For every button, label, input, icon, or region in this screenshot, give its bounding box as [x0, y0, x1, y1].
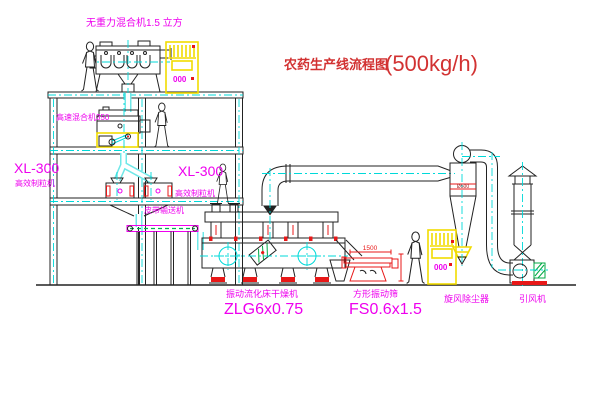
- sieve-motor: [392, 259, 398, 268]
- label-sieve-model: FS0.6x1.5: [349, 301, 422, 318]
- label-cyclone: 旋风除尘器: [444, 293, 489, 304]
- sieve-base: [350, 267, 386, 281]
- cad-flowchart-screenshot: 000: [0, 0, 600, 403]
- cyclone-dia-note: Ø500: [457, 184, 469, 190]
- sieve-dim-1500: 1500: [363, 245, 378, 252]
- drawing-title-capacity: (500kg/h): [385, 51, 478, 76]
- label-high-speed-mixer: 高速混合机350: [56, 112, 110, 122]
- label-granulator-left-name: 高效制粒机: [15, 178, 55, 188]
- exhaust-duct: [262, 164, 455, 240]
- label-fbd-name: 振动流化床干燥机: [226, 288, 298, 299]
- label-fan: 引风机: [519, 293, 546, 304]
- control-cabinet-top: 000: [166, 42, 198, 93]
- mixer-paddles: [101, 52, 150, 69]
- gravity-free-mixer: [86, 40, 171, 96]
- cyclone-outlet-pipe: [462, 150, 513, 275]
- label-gravity-mixer: 无重力混合机1.5 立方: [86, 16, 183, 29]
- drawing-title: 农药生产线流程图: [283, 57, 388, 72]
- induced-draft-fan: [498, 260, 548, 285]
- label-fbd-model: ZLG6x0.75: [224, 301, 303, 318]
- dryer-legs: [209, 268, 331, 283]
- dryer-bellows: [211, 222, 333, 238]
- label-granulator-right-model: XL-300: [178, 163, 223, 179]
- fluid-bed-dryer: [200, 204, 362, 284]
- cabinet-top-label: 000: [173, 75, 187, 84]
- control-cabinet-right: 000: [428, 230, 456, 284]
- exhaust-stack: [509, 162, 536, 286]
- cyclone-dust-collector: Ø500: [450, 142, 476, 266]
- vibration-motor: [249, 240, 276, 265]
- person-second-floor: [154, 103, 169, 147]
- person-ground: [407, 232, 425, 283]
- label-granulator-right-name: 高效制粒机: [175, 188, 215, 198]
- label-belt-conveyor: 皮带输送机: [144, 205, 184, 215]
- label-granulator-left-model: XL-300: [14, 160, 59, 176]
- drive-housing: [97, 133, 138, 147]
- square-vibrating-sieve: 1500: [342, 245, 404, 281]
- cabinet-right-label: 000: [434, 263, 448, 272]
- fan-base: [512, 281, 547, 285]
- drawing-canvas: 000: [0, 0, 600, 403]
- label-sieve-name: 方形振动筛: [353, 288, 398, 299]
